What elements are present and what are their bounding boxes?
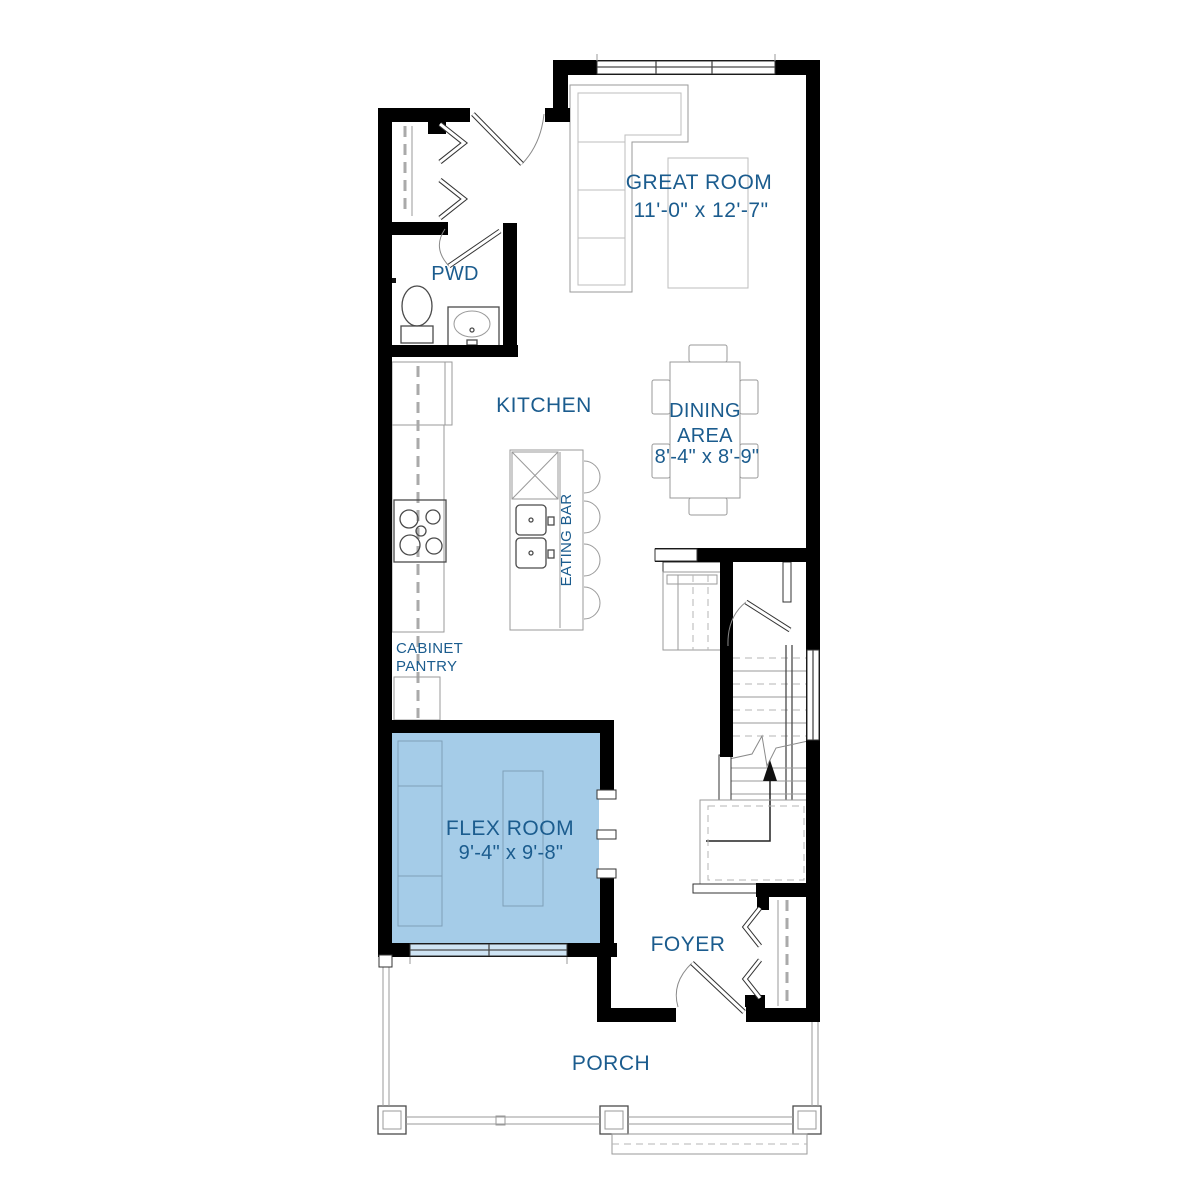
powder-room-fixtures <box>380 278 499 352</box>
dishwasher <box>512 452 558 499</box>
double-sink <box>516 505 554 568</box>
stair-door <box>728 602 790 646</box>
dining-label-line2: AREA <box>677 425 733 447</box>
toilet-tank <box>401 326 433 343</box>
foyer-label: FOYER <box>651 933 726 956</box>
entry-closet <box>405 126 412 216</box>
flex-room-window <box>410 944 567 964</box>
stair-window <box>807 650 819 740</box>
kitchen-label: KITCHEN <box>496 394 592 417</box>
pantry-label-line1: CABINET <box>396 640 463 657</box>
bar-stools <box>584 461 600 619</box>
cooktop <box>394 500 446 562</box>
foyer-closet-bifold-doors <box>745 908 760 998</box>
kitchen-island <box>510 450 600 630</box>
great-room-dims: 11'-0" x 12'-7" <box>633 199 768 222</box>
flex-room-label: FLEX ROOM <box>446 817 574 840</box>
pantry-label-line2: PANTRY <box>396 658 457 675</box>
foyer-closet <box>778 900 787 1006</box>
porch-steps <box>612 1134 807 1154</box>
porch-column-left <box>378 1106 406 1134</box>
great-room-window <box>597 54 775 74</box>
flex-room-dims: 9'-4" x 9'-8" <box>459 842 564 864</box>
floor-plan-drawing: GREAT ROOM 11'-0" x 12'-7" PWD KITCHEN D… <box>0 0 1201 1201</box>
dining-dims: 8'-4" x 8'-9" <box>655 446 760 468</box>
eating-bar-label: EATING BAR <box>558 494 575 587</box>
staircase <box>663 562 812 893</box>
pwd-door <box>439 229 500 266</box>
stair-landing <box>700 800 812 886</box>
wall-right <box>806 60 820 1022</box>
pwd-label: PWD <box>431 263 479 285</box>
refrigerator <box>392 362 452 425</box>
dining-label-line1: DINING <box>669 400 741 422</box>
great-room-label: GREAT ROOM <box>626 171 773 194</box>
wall-left <box>378 108 392 957</box>
sink-basin <box>454 311 490 337</box>
front-door <box>676 963 744 1012</box>
porch-label: PORCH <box>572 1052 650 1075</box>
toilet-bowl <box>402 286 432 326</box>
entry-closet-bifold-doors <box>440 124 464 218</box>
dining-wall-window <box>655 549 697 561</box>
floor-plan-page: GREAT ROOM 11'-0" x 12'-7" PWD KITCHEN D… <box>0 0 1201 1201</box>
porch-column-center <box>600 1106 628 1134</box>
porch-column-right <box>793 1106 821 1134</box>
stair-half-wall <box>719 755 731 800</box>
